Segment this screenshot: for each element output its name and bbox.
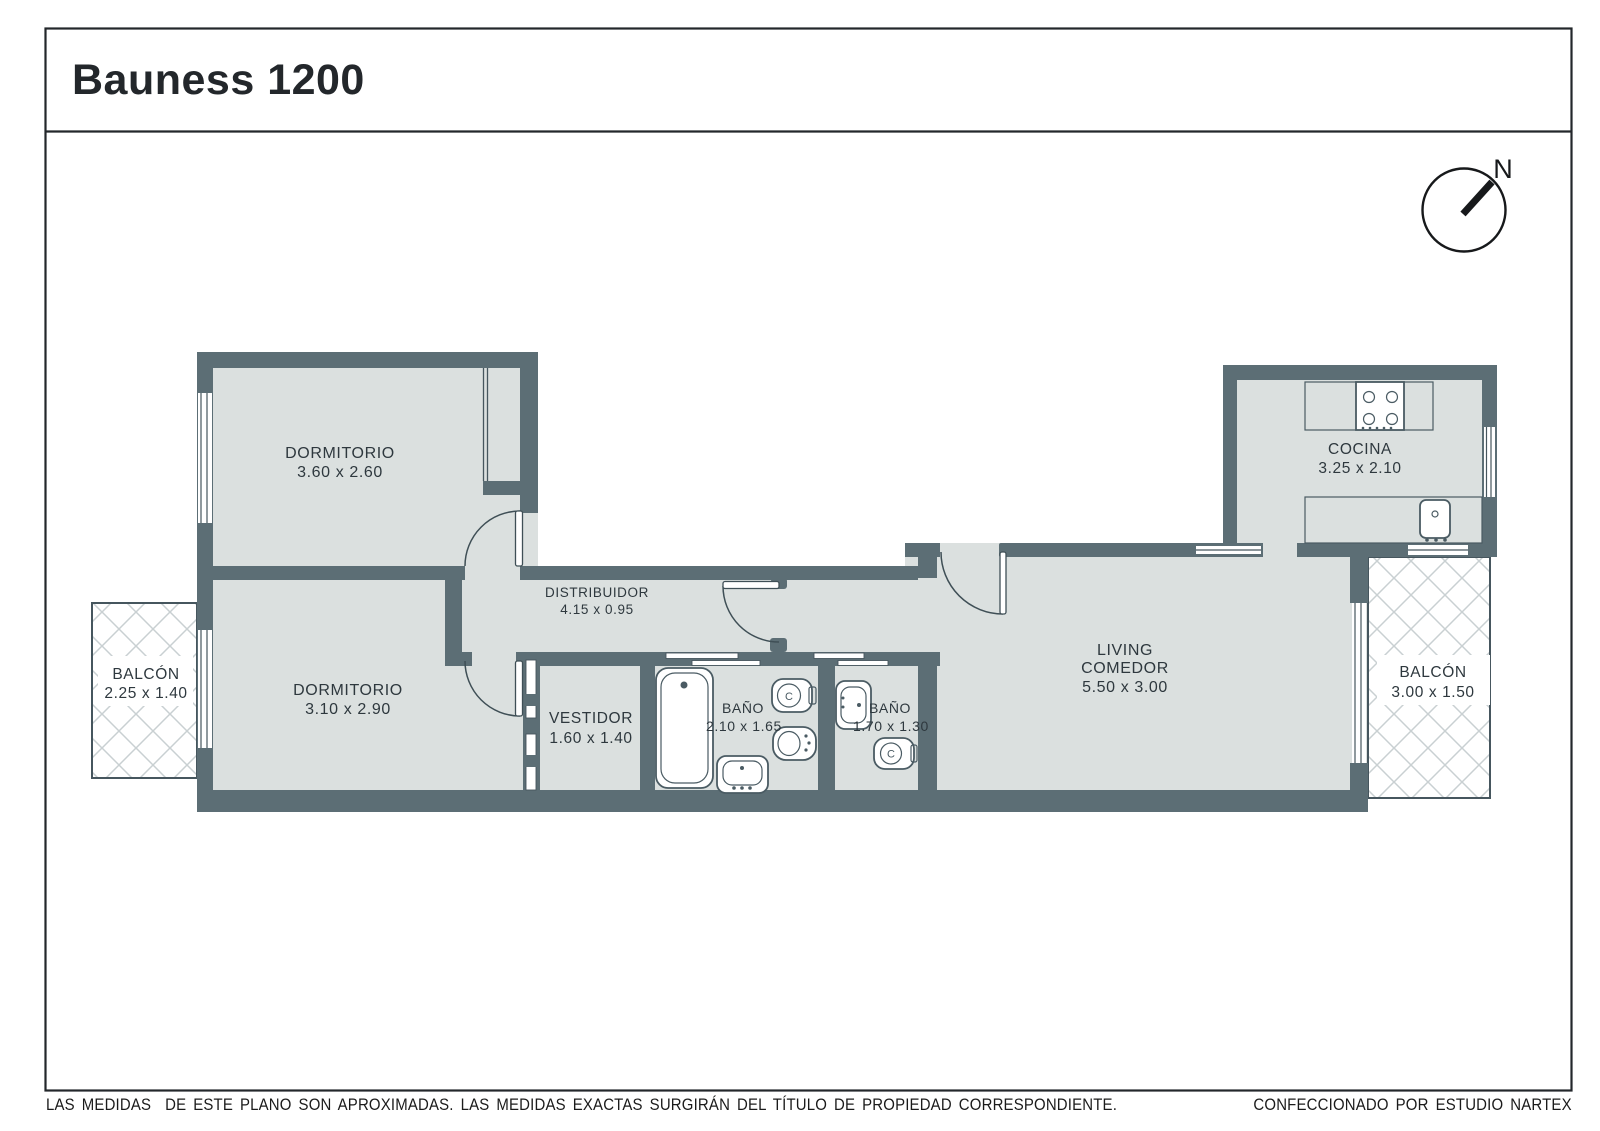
- window-dormitorio-2: [198, 630, 212, 748]
- compass-north-label: N: [1493, 154, 1513, 184]
- label-balcon-der: BALCÓN: [1399, 664, 1466, 681]
- label-distribuidor: DISTRIBUIDOR: [545, 585, 649, 600]
- label-living-1: LIVING: [1097, 642, 1153, 659]
- stove-icon: [1356, 382, 1404, 430]
- dims-dormitorio-1: 3.60 x 2.60: [297, 464, 383, 481]
- dims-dormitorio-2: 3.10 x 2.90: [305, 701, 391, 718]
- dims-bano-1: 2.10 x 1.65: [706, 718, 782, 734]
- sliding-door-bath-2b: [838, 661, 888, 666]
- window-living-balcony: [1352, 603, 1366, 763]
- footer-credit: CONFECCIONADO POR ESTUDIO NARTEX: [1254, 1095, 1572, 1115]
- north-compass: N: [1423, 154, 1513, 252]
- vestidor-door-stop-a: [523, 694, 540, 706]
- sliding-door-vestidor-a: [526, 660, 536, 718]
- plan-title: Bauness 1200: [72, 56, 365, 105]
- room-living-comedor: [905, 543, 1368, 812]
- toilet-label-bath2: C: [887, 749, 895, 761]
- dims-balcon-der: 3.00 x 1.50: [1391, 684, 1474, 701]
- label-vestidor: VESTIDOR: [549, 710, 633, 727]
- toilet-icon-bath2: C: [874, 738, 917, 769]
- sliding-door-bath-1: [666, 653, 738, 659]
- dims-living: 5.50 x 3.00: [1082, 679, 1168, 696]
- sink-icon-bath1: [717, 756, 768, 793]
- label-bano-2: BAÑO: [869, 700, 911, 716]
- footer-disclaimer: LAS MEDIDAS DE ESTE PLANO SON APROXIMADA…: [46, 1095, 1117, 1115]
- label-living-2: COMEDOR: [1081, 660, 1169, 677]
- window-kitchen-right: [1484, 427, 1495, 497]
- sliding-door-bath-1b: [692, 661, 760, 666]
- dims-vestidor: 1.60 x 1.40: [549, 730, 632, 747]
- window-kitchen-balcony: [1408, 545, 1468, 555]
- label-balcon-izq: BALCÓN: [112, 666, 179, 683]
- sliding-door-bath-2: [814, 653, 864, 659]
- window-dormitorio-1: [198, 393, 212, 523]
- room-fills: [197, 352, 1497, 812]
- label-bano-1: BAÑO: [722, 700, 764, 716]
- dims-bano-2: 1.70 x 1.30: [853, 718, 929, 734]
- plan-sheet: N: [0, 0, 1600, 1131]
- bathtub-icon: [656, 668, 713, 788]
- label-dormitorio-1: DORMITORIO: [285, 445, 395, 462]
- dims-distribuidor: 4.15 x 0.95: [560, 602, 633, 617]
- dims-cocina: 3.25 x 2.10: [1318, 460, 1401, 477]
- toilet-label-bath1: C: [785, 691, 793, 703]
- pass-through-counter: [1196, 546, 1261, 554]
- dims-balcon-izq: 2.25 x 1.40: [104, 685, 187, 702]
- label-dormitorio-2: DORMITORIO: [293, 682, 403, 699]
- vestidor-door-stop-b: [523, 755, 540, 767]
- kitchen-sink-icon: [1420, 500, 1450, 542]
- label-cocina: COCINA: [1328, 441, 1392, 458]
- floor-plan: N: [0, 0, 1600, 1131]
- toilet-icon-bath1: C: [772, 679, 816, 712]
